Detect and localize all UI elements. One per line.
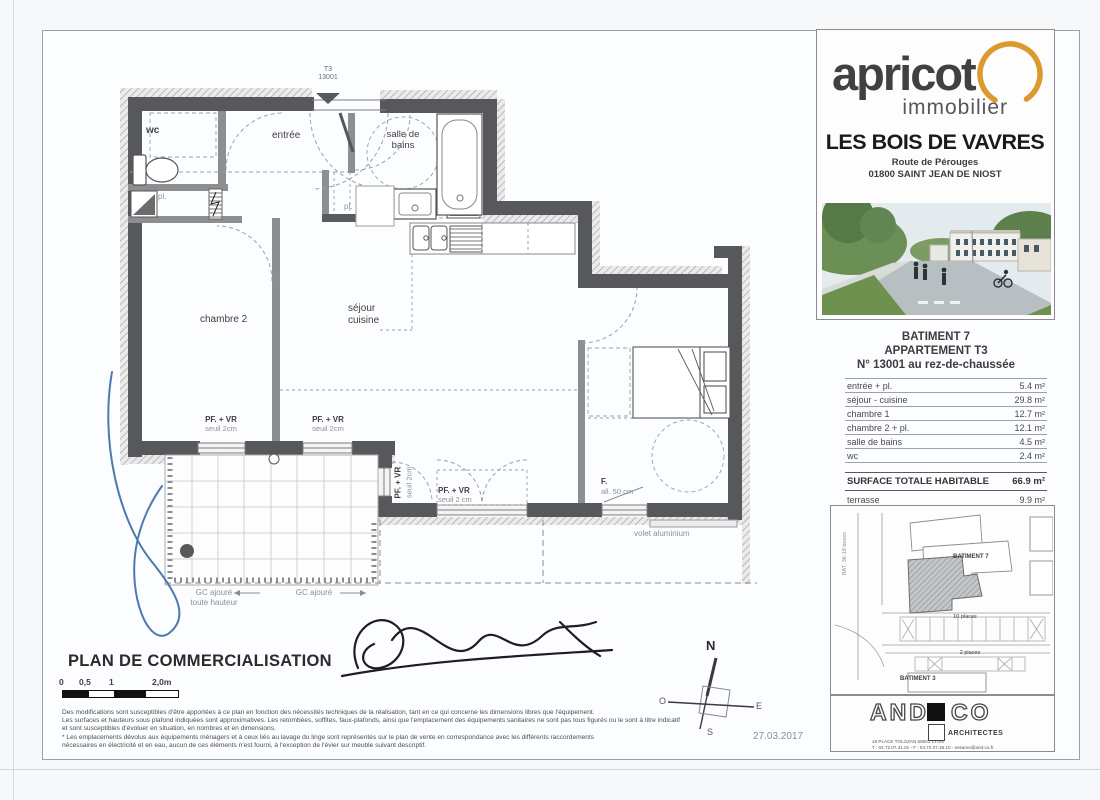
- siteplan-batiment3-label: BATIMENT 3: [900, 676, 936, 683]
- terrace: [165, 454, 378, 596]
- surface-table: entrée + pl.5.4 m² séjour - cuisine29.8 …: [845, 378, 1047, 509]
- apricot-logo-sub: immobilier: [830, 96, 1008, 120]
- project-address-1: Route de Pérouges: [820, 157, 1050, 168]
- total-area: 66.9 m²: [1012, 476, 1045, 487]
- table-row: entrée + pl.5.4 m²: [845, 378, 1047, 393]
- row-label: entrée + pl.: [847, 381, 892, 391]
- compass-west-label: O: [659, 696, 666, 706]
- row-area: 29.8 m²: [1014, 395, 1045, 405]
- compass-north-label: N: [706, 639, 715, 654]
- siteplan-side-label: BAT. 36-18 boxes: [842, 532, 848, 575]
- unit-entry-arrow: [316, 93, 340, 104]
- table-row: wc2.4 m²: [845, 449, 1047, 463]
- architect-contact: T : 04.72.07.41.01 - F : 04.72.07.46.10 …: [872, 745, 994, 750]
- row-area: 5.4 m²: [1019, 381, 1045, 391]
- project-photo: [822, 203, 1051, 315]
- table-row: salle de bains4.5 m²: [845, 435, 1047, 449]
- row-area: 4.5 m²: [1019, 437, 1045, 447]
- project-title: LES BOIS DE VAVRES: [820, 130, 1050, 155]
- row-area: 2.4 m²: [1019, 451, 1045, 461]
- compass-south-label: S: [707, 727, 713, 737]
- architect-logo-square-filled: [927, 703, 945, 721]
- bed: [633, 347, 730, 418]
- scale-tick-1: 1: [109, 678, 114, 688]
- kitchen-counter: [410, 223, 575, 254]
- siteplan-drawing: [830, 505, 1053, 693]
- scale-tick-0: 0: [59, 678, 64, 688]
- apricot-logo: apricot: [832, 46, 975, 101]
- table-row: chambre 2 + pl.12.1 m²: [845, 421, 1047, 435]
- project-address-2: 01800 SAINT JEAN DE NIOST: [820, 169, 1050, 180]
- table-row: séjour - cuisine29.8 m²: [845, 393, 1047, 407]
- architect-name-left: AND: [870, 699, 929, 726]
- plan-date: 27.03.2017: [753, 731, 803, 743]
- siteplan-batiment7-label: BATIMENT 7: [953, 554, 989, 561]
- row-label: chambre 1: [847, 409, 890, 419]
- scale-tick-2: 2,0m: [152, 678, 171, 688]
- info-type: APPARTEMENT T3: [823, 345, 1049, 357]
- total-label: SURFACE TOTALE HABITABLE: [847, 476, 989, 487]
- wc-toilet: [133, 155, 178, 185]
- terrace-area: 9.9 m²: [1019, 495, 1045, 505]
- row-label: wc: [847, 451, 858, 461]
- total-surface-row: SURFACE TOTALE HABITABLE 66.9 m²: [845, 472, 1047, 491]
- compass: [668, 658, 754, 729]
- info-number: N° 13001 au rez-de-chaussée: [823, 359, 1049, 371]
- row-label: séjour - cuisine: [847, 395, 908, 405]
- volet-strip: [650, 520, 737, 527]
- compass-east-label: E: [756, 701, 762, 711]
- row-label: chambre 2 + pl.: [847, 423, 909, 433]
- sheet-title: PLAN DE COMMERCIALISATION: [68, 652, 332, 671]
- architect-subtitle: ARCHITECTES: [948, 730, 1003, 737]
- architect-name-right: CO: [951, 699, 992, 726]
- window-flap: [604, 487, 643, 502]
- scale-tick-05: 0,5: [79, 678, 91, 688]
- siteplan-places10-label: 10 places: [935, 614, 995, 620]
- row-label: salle de bains: [847, 437, 902, 447]
- row-area: 12.1 m²: [1014, 423, 1045, 433]
- table-row: chambre 112.7 m²: [845, 407, 1047, 421]
- signature-black: [342, 620, 612, 676]
- info-building: BATIMENT 7: [823, 331, 1049, 343]
- architect-address: 18 PLACE TOLOZAN 69001 LYON: [872, 739, 944, 744]
- row-area: 12.7 m²: [1014, 409, 1045, 419]
- siteplan-places2-label: 2 places: [940, 650, 1000, 656]
- terrace-label: terrasse: [847, 495, 880, 505]
